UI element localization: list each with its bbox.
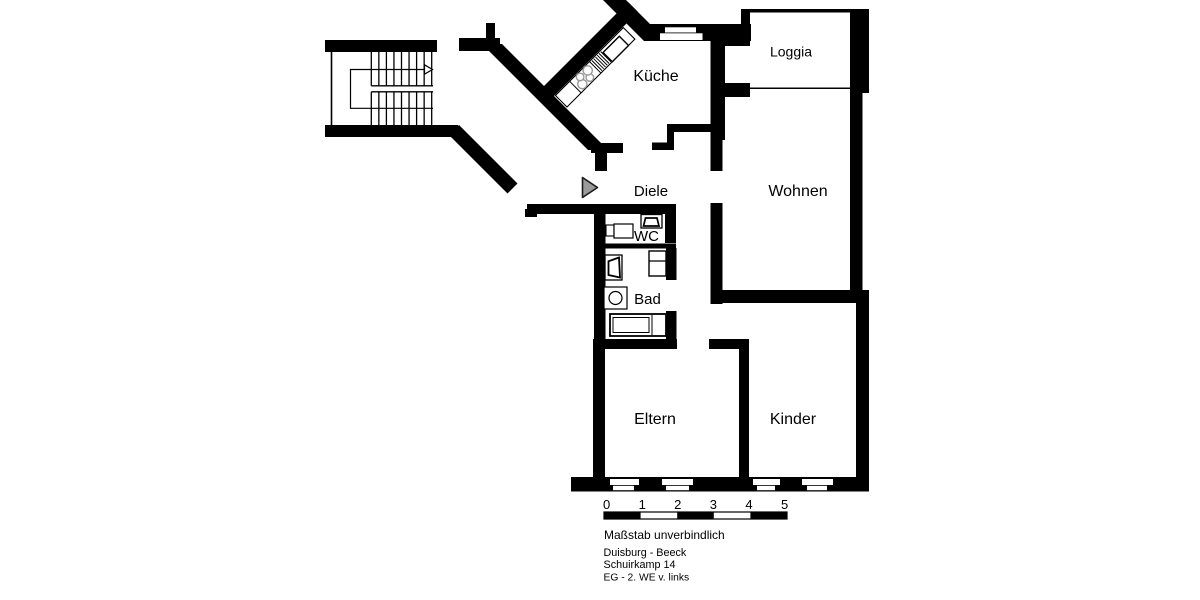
svg-text:WC: WC — [634, 228, 659, 245]
svg-text:Diele: Diele — [634, 183, 668, 200]
svg-text:Wohnen: Wohnen — [768, 183, 827, 200]
svg-text:3: 3 — [710, 497, 717, 512]
svg-text:4: 4 — [745, 497, 752, 512]
svg-text:Kinder: Kinder — [770, 411, 817, 428]
svg-text:2: 2 — [674, 497, 681, 512]
svg-text:5: 5 — [781, 497, 788, 512]
svg-text:0: 0 — [603, 497, 610, 512]
svg-text:Eltern: Eltern — [634, 411, 676, 428]
svg-text:Schuirkamp 14: Schuirkamp 14 — [604, 559, 676, 571]
svg-text:Maßstab unverbindlich: Maßstab unverbindlich — [604, 528, 725, 542]
svg-text:Duisburg - Beeck: Duisburg - Beeck — [604, 547, 687, 559]
svg-text:Küche: Küche — [633, 68, 678, 85]
svg-text:EG - 2. WE v. links: EG - 2. WE v. links — [604, 573, 690, 584]
svg-text:Bad: Bad — [634, 291, 661, 308]
svg-text:1: 1 — [639, 497, 646, 512]
svg-text:Loggia: Loggia — [770, 44, 812, 60]
